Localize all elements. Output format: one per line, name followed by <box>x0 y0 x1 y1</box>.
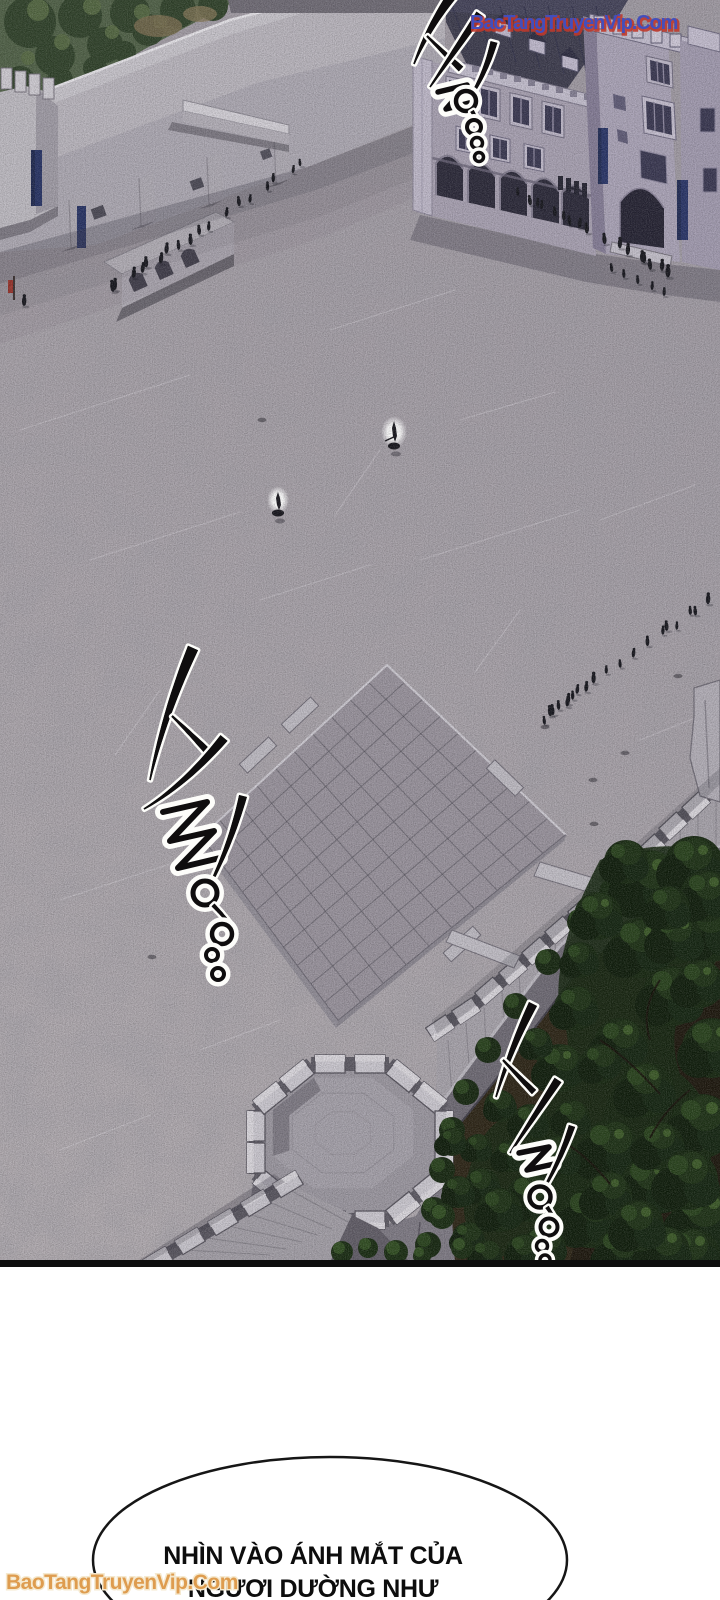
svg-text:BaoTangTruyenVip.Com: BaoTangTruyenVip.Com <box>6 1571 238 1594</box>
svg-text:BacTangTruyenVip.Com: BacTangTruyenVip.Com <box>470 12 678 34</box>
svg-text:NHÌN VÀO ÁNH MẮT CỦA: NHÌN VÀO ÁNH MẮT CỦA <box>163 1540 463 1570</box>
